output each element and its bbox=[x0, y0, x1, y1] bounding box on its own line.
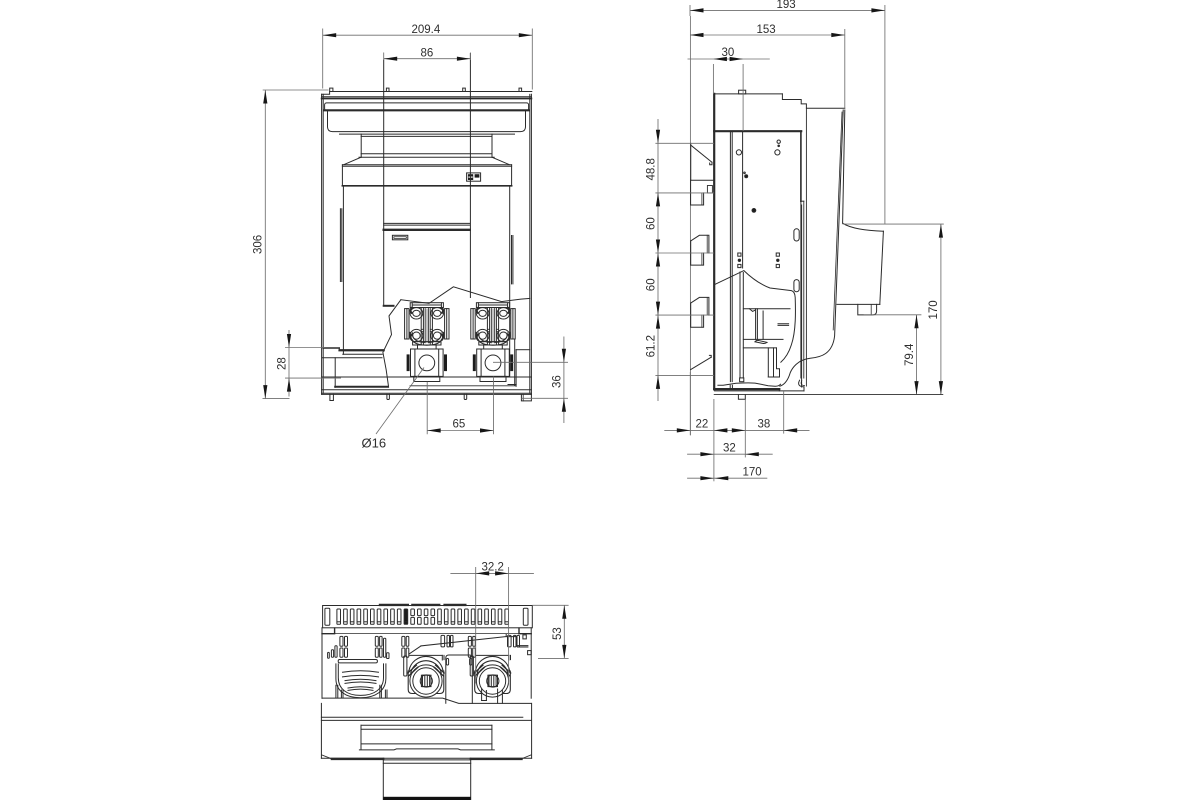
svg-text:48.8: 48.8 bbox=[646, 158, 658, 180]
svg-text:22: 22 bbox=[696, 419, 709, 431]
svg-text:53: 53 bbox=[552, 627, 564, 640]
svg-text:61.2: 61.2 bbox=[646, 335, 658, 357]
svg-text:65: 65 bbox=[453, 419, 466, 431]
svg-text:32.2: 32.2 bbox=[482, 561, 504, 573]
svg-text:153: 153 bbox=[757, 24, 776, 36]
svg-text:170: 170 bbox=[743, 466, 762, 478]
svg-text:32: 32 bbox=[723, 442, 736, 454]
svg-text:306: 306 bbox=[253, 235, 265, 254]
svg-text:28: 28 bbox=[277, 357, 289, 370]
svg-text:193: 193 bbox=[777, 0, 796, 11]
svg-text:38: 38 bbox=[758, 419, 771, 431]
svg-text:36: 36 bbox=[552, 375, 564, 388]
svg-text:30: 30 bbox=[722, 47, 735, 59]
svg-text:170: 170 bbox=[928, 300, 940, 319]
svg-text:60: 60 bbox=[646, 217, 658, 230]
svg-text:86: 86 bbox=[421, 48, 434, 60]
svg-text:60: 60 bbox=[646, 278, 658, 291]
svg-text:79.4: 79.4 bbox=[904, 343, 916, 366]
svg-text:209.4: 209.4 bbox=[412, 24, 441, 36]
svg-text:Ø16: Ø16 bbox=[362, 436, 387, 451]
